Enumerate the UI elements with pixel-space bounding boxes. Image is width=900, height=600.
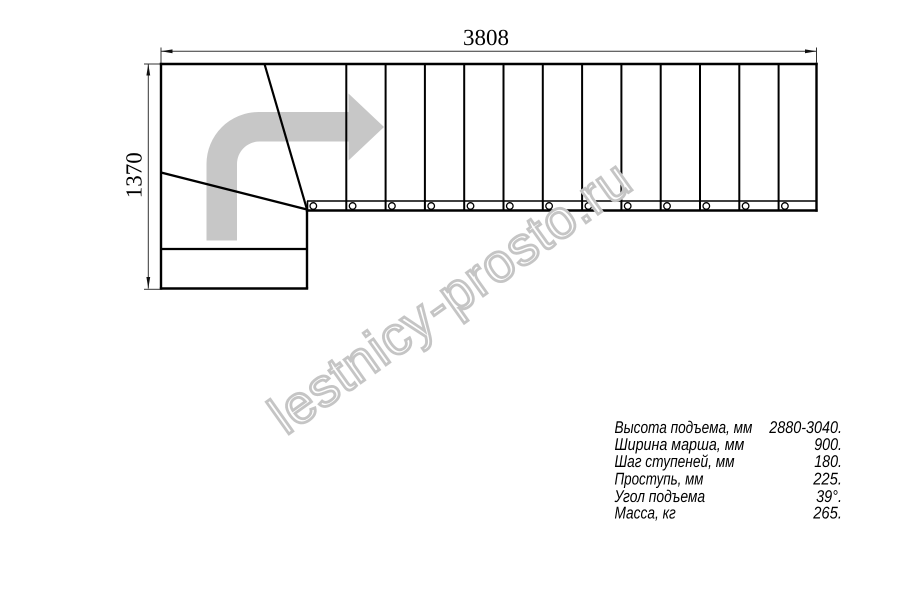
svg-text:900.: 900. — [814, 435, 842, 454]
svg-text:Масса, кг: Масса, кг — [615, 504, 676, 523]
svg-text:225.: 225. — [812, 470, 842, 489]
svg-text:Ширина марша, мм: Ширина марша, мм — [615, 435, 745, 454]
svg-text:265.: 265. — [812, 504, 842, 523]
svg-text:Шаг ступеней, мм: Шаг ступеней, мм — [615, 452, 735, 471]
svg-text:3808: 3808 — [463, 25, 509, 50]
svg-text:1370: 1370 — [121, 152, 146, 198]
svg-text:180.: 180. — [814, 452, 842, 471]
svg-text:Проступь, мм: Проступь, мм — [615, 470, 704, 489]
